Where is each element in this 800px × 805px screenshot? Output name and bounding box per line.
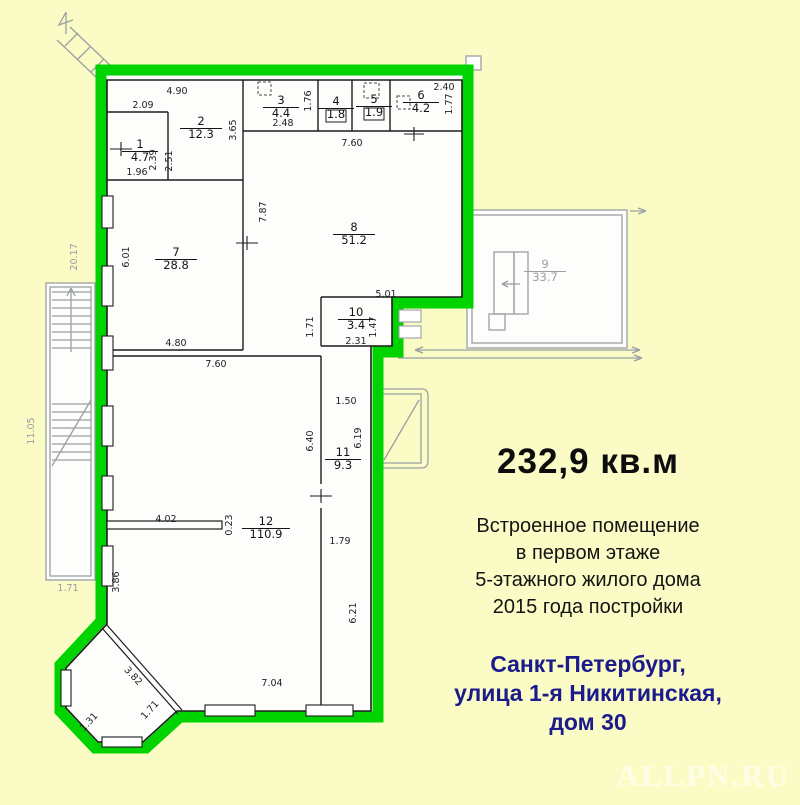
dimension-label: 6.01 bbox=[121, 246, 132, 267]
watermark: ALLPN.RU bbox=[616, 758, 790, 794]
dimension-label: 1.47 bbox=[368, 316, 379, 337]
dimension-label: 4.02 bbox=[155, 514, 176, 525]
address-line: Санкт-Петербург, bbox=[392, 650, 784, 679]
dimension-label: 1.76 bbox=[303, 90, 314, 111]
dimension-label: 2.39 bbox=[148, 149, 159, 170]
dimension-label: 6.21 bbox=[348, 602, 359, 623]
dimension-label: 2.40 bbox=[433, 82, 454, 93]
svg-text:9: 9 bbox=[541, 257, 548, 271]
dimension-label: 4.80 bbox=[165, 338, 186, 349]
svg-text:4: 4 bbox=[332, 94, 339, 108]
address-line: улица 1-я Никитинская, bbox=[392, 679, 784, 708]
dimension-label: 5.01 bbox=[375, 289, 396, 300]
dimension-label: 20.17 bbox=[69, 243, 80, 270]
description-line: Встроенное помещение bbox=[392, 513, 784, 540]
svg-text:1.8: 1.8 bbox=[327, 107, 345, 121]
listing-image: 14.7212.334.441.851.964.2728.8851.2933.7… bbox=[0, 0, 800, 800]
dimension-label: 7.60 bbox=[341, 138, 362, 149]
dimension-label: 11.05 bbox=[26, 417, 37, 444]
svg-text:4.7: 4.7 bbox=[131, 150, 149, 164]
svg-text:5: 5 bbox=[370, 92, 377, 106]
svg-text:51.2: 51.2 bbox=[341, 233, 367, 247]
dimension-label: 3.86 bbox=[111, 571, 122, 592]
dimension-label: 7.60 bbox=[205, 359, 226, 370]
dimension-label: 1.71 bbox=[57, 583, 78, 594]
dimension-label: 6.40 bbox=[305, 430, 316, 451]
dimension-label: 2.09 bbox=[132, 100, 153, 111]
svg-text:110.9: 110.9 bbox=[250, 527, 283, 541]
property-address: Санкт-Петербург, улица 1-я Никитинская, … bbox=[392, 650, 784, 737]
total-area: 232,9 кв.м bbox=[392, 442, 784, 482]
property-description: Встроенное помещение в первом этаже 5-эт… bbox=[392, 513, 784, 621]
svg-text:12: 12 bbox=[259, 514, 274, 528]
dimension-label: 0.23 bbox=[224, 514, 235, 535]
address-line: дом 30 bbox=[392, 708, 784, 737]
dimension-label: 7.04 bbox=[261, 678, 282, 689]
svg-text:7: 7 bbox=[172, 245, 179, 259]
svg-text:9.3: 9.3 bbox=[334, 458, 352, 472]
dimension-label: 2.51 bbox=[164, 150, 175, 171]
dimension-label: 7.87 bbox=[258, 201, 269, 222]
dimension-label: 1.71 bbox=[305, 316, 316, 337]
svg-text:8: 8 bbox=[350, 220, 357, 234]
info-box: 232,9 кв.м Встроенное помещение в первом… bbox=[392, 442, 784, 737]
dimension-label: 2.48 bbox=[272, 118, 293, 129]
svg-text:6: 6 bbox=[417, 88, 424, 102]
svg-text:11: 11 bbox=[336, 445, 351, 459]
dimension-label: 3.65 bbox=[228, 119, 239, 140]
svg-text:4.2: 4.2 bbox=[412, 101, 430, 115]
description-line: 5-этажного жилого дома bbox=[392, 567, 784, 594]
svg-text:3: 3 bbox=[277, 93, 284, 107]
dimension-label: 1.79 bbox=[329, 536, 350, 547]
svg-text:10: 10 bbox=[349, 305, 364, 319]
dimension-label: 4.90 bbox=[166, 86, 187, 97]
svg-text:1.9: 1.9 bbox=[365, 105, 383, 119]
dimension-label: 6.19 bbox=[353, 427, 364, 448]
description-line: в первом этаже bbox=[392, 540, 784, 567]
dimension-label: 1.77 bbox=[444, 93, 455, 114]
dimension-label: 2.31 bbox=[345, 336, 366, 347]
svg-text:2: 2 bbox=[197, 114, 204, 128]
svg-text:3.4: 3.4 bbox=[347, 318, 365, 332]
dimension-label: 1.50 bbox=[335, 396, 356, 407]
svg-text:33.7: 33.7 bbox=[532, 270, 558, 284]
svg-text:1: 1 bbox=[136, 137, 143, 151]
description-line: 2015 года постройки bbox=[392, 594, 784, 621]
dimension-label: 1.96 bbox=[126, 167, 147, 178]
svg-text:28.8: 28.8 bbox=[163, 258, 189, 272]
svg-text:12.3: 12.3 bbox=[188, 127, 214, 141]
